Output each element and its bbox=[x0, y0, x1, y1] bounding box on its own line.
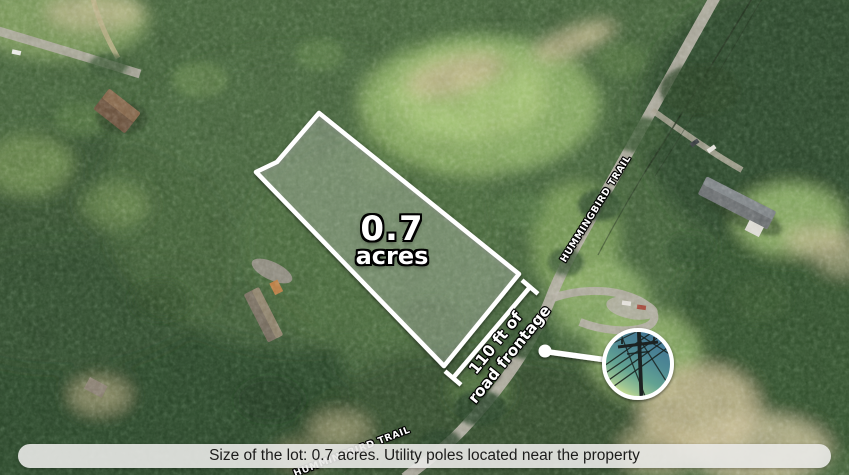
utility-pole-callout bbox=[539, 345, 608, 361]
lot-aerial-view: 0.7 acres 110 ft of road frontage HUMMIN… bbox=[0, 0, 849, 475]
callout-dot bbox=[539, 345, 552, 358]
caption-text: Size of the lot: 0.7 acres. Utility pole… bbox=[209, 444, 640, 468]
lot-acreage-value: 0.7 bbox=[356, 214, 429, 244]
lot-acreage-unit: acres bbox=[356, 244, 429, 268]
callout-line bbox=[549, 352, 607, 360]
caption-bar: Size of the lot: 0.7 acres. Utility pole… bbox=[18, 444, 831, 468]
lot-size-label: 0.7 acres bbox=[356, 214, 429, 268]
utility-pole-inset bbox=[604, 322, 672, 398]
